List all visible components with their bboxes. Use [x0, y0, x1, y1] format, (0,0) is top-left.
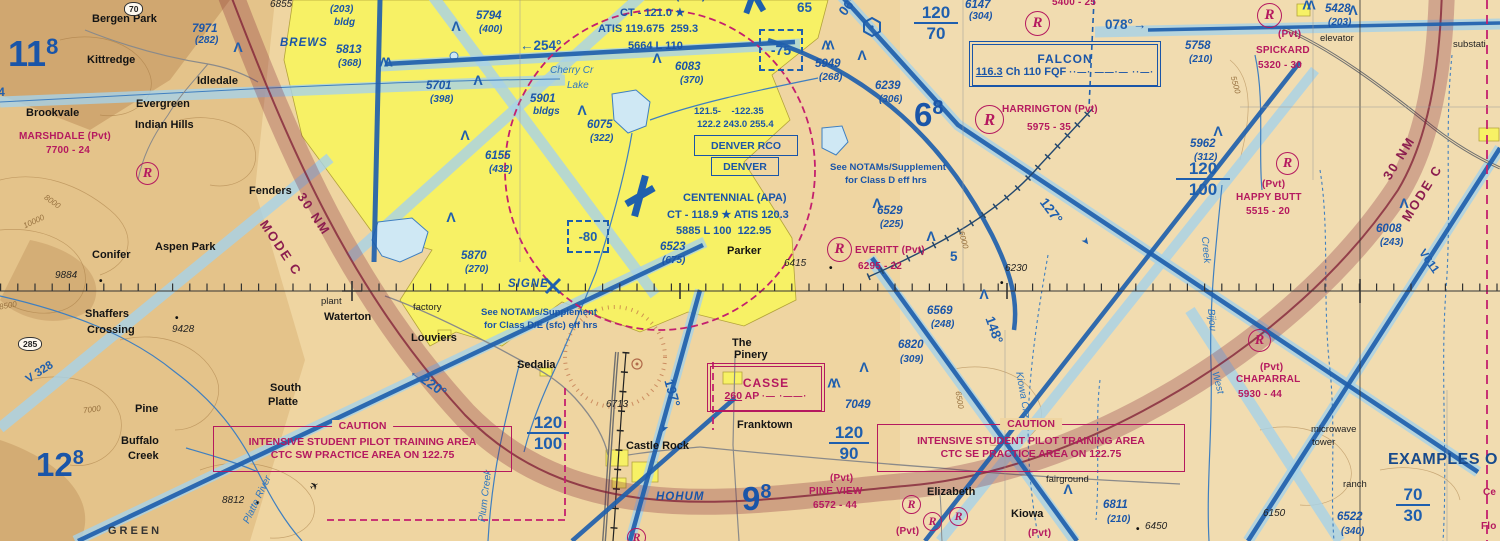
obst-5840-agl: (203) [330, 5, 353, 15]
town-evergreen: Evergreen [136, 99, 190, 110]
obsym-14: Λ [1348, 3, 1357, 17]
water-cherry-cr: Cherry Cr [550, 66, 593, 76]
spot-6855: 6855 [270, 0, 292, 10]
falcon-vor-freq: 116.3 Ch 110 FQF ··—· ——·— ··—· [973, 66, 1157, 78]
apt-buckley-name: AFB (BKF) [650, 0, 706, 2]
spot-6150: 6150 [1263, 509, 1285, 519]
casse-ndb-inner: CASSE 260 AP ·— ·——· [710, 366, 822, 411]
apt-spickard-pvt: (Pvt) [1278, 30, 1301, 40]
falcon-vor-inner: FALCON 116.3 Ch 110 FQF ··—· ——·— ··—· [972, 44, 1158, 86]
caution-sw-title: CAUTION [332, 420, 394, 432]
apt-harrington-data: 5975 - 35 [1027, 123, 1071, 133]
obst-7049: 7049 [845, 400, 871, 412]
mileage-65: 65 [797, 1, 812, 15]
poi-factory: factory [413, 303, 442, 313]
spot-dot-5: • [1000, 279, 1004, 289]
brg-arrow-197: ➤ [657, 422, 670, 434]
mef-98: 98 [742, 482, 771, 515]
r-top-2: R [1257, 3, 1282, 28]
obst-5949: 5949 [815, 59, 841, 71]
r-sedalia: R [627, 528, 646, 541]
town-aspen-park: Aspen Park [155, 242, 216, 253]
apt-pineview-pvt: (Pvt) [830, 474, 853, 484]
obst-5870: 5870 [461, 251, 487, 263]
falcon-freq: 116.3 [976, 66, 1003, 78]
r-spickard: R [1276, 152, 1299, 175]
obst-6529-agl: (225) [880, 220, 903, 230]
mef-68: 68 [914, 98, 943, 131]
obst-6523: 6523 [660, 242, 686, 254]
obsym-grp-3: ΛΛ [827, 377, 836, 390]
water-plum-creek: Plum Creek [478, 469, 494, 522]
obsym-11: Λ [979, 287, 988, 301]
awy-v84-cut: 84 [0, 88, 5, 100]
ctr-10000: 10000 [22, 214, 46, 231]
brg-197: 197° [662, 378, 682, 408]
town-creek: Creek [128, 451, 159, 462]
apt-spickard: SPICKARD [1256, 46, 1310, 56]
nm30-right: 30 NM [1381, 134, 1418, 182]
town-fenders: Fenders [249, 186, 292, 197]
brg-127: 127° [1037, 196, 1065, 226]
note-d-1: See NOTAMs/Supplement [830, 163, 946, 173]
apt-harrington: HARRINGTON (Pvt) [1002, 105, 1098, 115]
falcon-morse-code: ··—· ——·— ··—· [1069, 67, 1154, 77]
poi-substation: substati [1453, 40, 1486, 50]
denver-label: DENVER [723, 161, 767, 173]
fix-hohum: HOHUM [656, 492, 704, 504]
caution-se-line2: CTC SE PRACTICE AREA ON 122.75 [878, 448, 1184, 461]
fix-brews: BREWS [280, 38, 328, 50]
apt-buckley-atis: ATIS 119.675 259.3 [598, 24, 698, 35]
apt-5400-data: 5400 - 25 [1052, 0, 1096, 8]
town-south: South [270, 383, 301, 394]
poi-elevator: elevator [1320, 34, 1354, 44]
classb-120-100-s: 120100 [527, 414, 569, 452]
water-bijou: Bijou [1205, 308, 1217, 331]
obst-5840-bldg: bldg [334, 18, 355, 28]
ctr-5500: 5500 [1229, 75, 1241, 94]
brg-078: 078°→ [1105, 18, 1146, 32]
obsym-4: Λ [652, 51, 661, 65]
spot-9884: 9884 [55, 271, 77, 281]
town-franktown: Franktown [737, 420, 793, 431]
apt-centennial-data: 5885 L 100 122.95 [676, 226, 771, 237]
obsym-10: Λ [926, 229, 935, 243]
obst-5949-agl: (268) [819, 73, 842, 83]
caution-sw-line2: CTC SW PRACTICE AREA ON 122.75 [214, 449, 511, 462]
spot-6450: 6450 [1145, 522, 1167, 532]
obsym-7: Λ [446, 210, 455, 224]
obsym-8: Λ [857, 48, 866, 62]
modec-left: MODE C [258, 218, 305, 278]
note-de-2: for Class D/E (sfc) eff hrs [484, 321, 598, 331]
poi-ranch: ranch [1343, 480, 1367, 490]
obst-6147-agl: (304) [969, 12, 992, 22]
denver-box: DENVER [711, 157, 779, 176]
obst-6569-agl: (248) [931, 320, 954, 330]
area-green: GREEN [108, 526, 162, 537]
cut-ce: Ce [1483, 488, 1496, 498]
r-eliz-3: R [949, 507, 968, 526]
water-lake: Lake [567, 81, 589, 91]
caution-se-title: CAUTION [1000, 418, 1062, 430]
apt-buckley-ct: CT - 121.0 ★ [620, 8, 685, 19]
caution-box-sw: CAUTION INTENSIVE STUDENT PILOT TRAINING… [213, 426, 512, 472]
nm30-left: 30 NM [295, 190, 333, 237]
spot-dot-2: • [175, 314, 179, 324]
classb-120-100-e: 120100 [1176, 160, 1230, 198]
obst-6147: 6147 [965, 0, 991, 12]
obst-6523-agl: (675) [662, 256, 685, 266]
apt-marshdale-data: 7700 - 24 [46, 146, 90, 156]
town-parker: Parker [727, 246, 761, 257]
casse-ident: AP [742, 390, 759, 402]
r-eliz-2: R [923, 512, 942, 531]
obst-6083: 6083 [675, 62, 701, 74]
r-top-1: R [1025, 11, 1050, 36]
poi-microwave: microwave [1311, 425, 1356, 435]
obst-5428: 5428 [1325, 4, 1351, 16]
mef-128: 128 [36, 448, 84, 481]
r-marshdale: R [136, 162, 159, 185]
obst-5758-agl: (210) [1189, 55, 1212, 65]
obsym-1: Λ [233, 40, 242, 54]
town-brookvale: Brookvale [26, 108, 79, 119]
spot-dot-6: • [1136, 525, 1140, 535]
caution-se-line1: INTENSIVE STUDENT PILOT TRAINING AREA [878, 435, 1184, 448]
ctr-7000: 7000 [83, 405, 102, 415]
town-idledale: Idledale [197, 76, 238, 87]
poi-tower: tower [1312, 438, 1335, 448]
awy-v328: V 328 [24, 360, 55, 386]
ctr-6500: 6500 [954, 391, 965, 410]
obst-6811-agl: (210) [1107, 515, 1130, 525]
mileage-5: 5 [950, 250, 958, 264]
brg-254: ←254° [520, 39, 561, 53]
obst-6008-agl: (243) [1380, 238, 1403, 248]
obst-6075-agl: (322) [590, 134, 613, 144]
town-pinery: Pinery [734, 350, 768, 361]
falcon-channel: Ch 110 FQF [1003, 66, 1067, 78]
apt-happy-pvt: (Pvt) [1262, 180, 1285, 190]
obst-5701: 5701 [426, 81, 452, 93]
caution-box-se: CAUTION INTENSIVE STUDENT PILOT TRAINING… [877, 424, 1185, 472]
spot-8812: 8812 [222, 496, 244, 506]
town-kiowa: Kiowa [1011, 509, 1043, 520]
falcon-vor-name: FALCON [973, 52, 1157, 66]
brg-148: 148° [983, 315, 1005, 346]
spot-6230: 6230 [1005, 264, 1027, 274]
caution-sw-line1: INTENSIVE STUDENT PILOT TRAINING AREA [214, 436, 511, 449]
brg-arrow-127: ➤ [1078, 236, 1091, 249]
casse-freq-line: 260 AP ·— ·——· [711, 390, 821, 402]
glider-symbol: ✈ [308, 480, 321, 494]
modec-right: MODE C [1400, 162, 1445, 223]
note-de-1: See NOTAMs/Supplement [481, 308, 597, 318]
mef-118: 118 [8, 36, 58, 72]
route-shield-285: 285 [18, 337, 42, 351]
obsym-6: Λ [460, 128, 469, 142]
route-shield-70: 70 [124, 2, 143, 16]
obst-6239-agl: (306) [879, 95, 902, 105]
obst-6820-agl: (309) [900, 355, 923, 365]
r-bijou: R [1248, 329, 1271, 352]
obst-5701-agl: (398) [430, 95, 453, 105]
r-everitt: R [827, 237, 852, 262]
town-louviers: Louviers [411, 333, 457, 344]
obst-5813: 5813 [336, 45, 362, 57]
casse-ndb-box: CASSE 260 AP ·— ·——· [707, 363, 825, 412]
town-elizabeth: Elizabeth [927, 487, 975, 498]
rco-freq-1: 121.5- -122.35 [694, 107, 764, 117]
obsym-3: Λ [473, 73, 482, 87]
casse-morse-code: ·— ·——· [762, 391, 808, 401]
obst-5813-agl: (368) [338, 59, 361, 69]
obsym-5: Λ [577, 103, 586, 117]
classb-floor-75-value: -75 [771, 42, 791, 58]
classb-floor-75: -75 [759, 29, 803, 71]
obst-6569: 6569 [927, 306, 953, 318]
obst-7971-agl: (282) [195, 36, 218, 46]
casse-name: CASSE [711, 376, 821, 390]
obst-5870-agl: (270) [465, 265, 488, 275]
obst-6811: 6811 [1103, 500, 1128, 512]
examples-label: EXAMPLES O [1388, 452, 1498, 468]
apt-pvt-s1: (Pvt) [896, 527, 919, 537]
apt-everitt-data: 6295 - 22 [858, 262, 902, 272]
obsym-16: Λ [1063, 482, 1072, 496]
obsym-15: Λ [859, 360, 868, 374]
r-eliz-1: R [902, 495, 921, 514]
obsym-grp-4: ΛΛ [1302, 0, 1311, 12]
spot-9428: 9428 [172, 325, 194, 335]
classb-floor-80-value: -80 [579, 229, 598, 244]
apt-pineview-data: 6572 - 44 [813, 501, 857, 511]
apt-spickard-data: 5320 - 30 [1258, 61, 1302, 71]
classb-120-90: 12090 [829, 424, 869, 462]
obst-5962: 5962 [1190, 139, 1216, 151]
town-bergen-park: Bergen Park [92, 14, 157, 25]
obsym-13: Λ [1399, 196, 1408, 210]
r-harrington: R [975, 105, 1004, 134]
awy-v611: V611 [1416, 248, 1440, 276]
obst-6239: 6239 [875, 81, 901, 93]
classb-120-70: 12070 [914, 4, 958, 42]
rco-freq-2: 122.2 243.0 255.4 [697, 120, 774, 130]
falcon-vor-box: FALCON 116.3 Ch 110 FQF ··—· ——·— ··—· [969, 41, 1161, 87]
obst-6820: 6820 [898, 340, 924, 352]
town-castle-rock: Castle Rock [626, 441, 689, 452]
apt-pineview: PINE VIEW [809, 487, 862, 497]
apt-chaparral-pvt: (Pvt) [1260, 363, 1283, 373]
spot-6415: 6415 [784, 259, 806, 269]
obst-6155: 6155 [485, 151, 511, 163]
apt-chaparral: CHAPARRAL [1236, 375, 1300, 385]
ctr-6000: 6000 [957, 230, 969, 249]
town-indian-hills: Indian Hills [135, 120, 194, 131]
obsym-9: Λ [872, 196, 881, 210]
obsym-grp-2: ΛΛ [821, 39, 830, 52]
obst-6522: 6522 [1337, 512, 1363, 524]
apt-happy-butt: HAPPY BUTT [1236, 193, 1302, 203]
apt-happy-data: 5515 - 20 [1246, 207, 1290, 217]
water-creek: Creek [1199, 236, 1211, 263]
spot-dot-4: • [829, 264, 833, 274]
sectional-chart[interactable]: Bergen ParkKittredgeIdledaleEvergreenInd… [0, 0, 1500, 541]
town-waterton: Waterton [324, 312, 371, 323]
water-west: West [1209, 371, 1225, 395]
obst-5901: 5901 [530, 94, 556, 106]
spot-dot-1: • [99, 277, 103, 287]
note-d-2: for Class D eff hrs [845, 176, 927, 186]
obst-6008: 6008 [1376, 224, 1402, 236]
poi-plant: plant [321, 297, 342, 307]
apt-centennial-ct: CT - 118.9 ★ ATIS 120.3 [667, 210, 789, 221]
denver-rco-label: DENVER RCO [711, 140, 781, 152]
town-pine: Pine [135, 404, 158, 415]
town-conifer: Conifer [92, 250, 131, 261]
obsym-12: Λ [1213, 124, 1222, 138]
obsym-grp-1: ΛΛ [379, 56, 388, 69]
brg-220: ←220° [407, 365, 449, 400]
water-platte-river: Platte River [242, 475, 274, 526]
obst-5758: 5758 [1185, 41, 1211, 53]
ctr-8500: 8500 [0, 301, 17, 312]
apt-marshdale: MARSHDALE (Pvt) [19, 132, 111, 142]
cut-flo: Flo [1481, 522, 1497, 532]
town-the: The [732, 338, 752, 349]
obst-5428-agl: (203) [1328, 18, 1351, 28]
obsym-2: Λ [451, 19, 460, 33]
classb-floor-80: -80 [567, 220, 609, 253]
town-crossing: Crossing [87, 325, 135, 336]
obst-6155-agl: (432) [489, 165, 512, 175]
obst-6522-agl: (340) [1341, 527, 1364, 537]
town-shaffers: Shaffers [85, 309, 129, 320]
spot-6713: 6713 [606, 400, 628, 410]
obst-5901-bldgs: bldgs [533, 107, 560, 117]
apt-pvt-s2: (Pvt) [1028, 529, 1051, 539]
apt-everitt: EVERITT (Pvt) [855, 246, 925, 256]
apt-chaparral-data: 5930 - 44 [1238, 390, 1282, 400]
obst-5840: 5840 [337, 0, 363, 2]
fix-signe: SIGNE [508, 279, 549, 291]
apt-centennial-name: CENTENNIAL (APA) [683, 193, 786, 204]
denver-rco-box: DENVER RCO [694, 135, 798, 156]
town-sedalia: Sedalia [517, 360, 556, 371]
obst-5794: 5794 [476, 11, 502, 23]
town-kittredge: Kittredge [87, 55, 135, 66]
obst-6083-agl: (370) [680, 76, 703, 86]
casse-freq: 260 [725, 390, 743, 402]
classb-70-30: 7030 [1396, 486, 1430, 524]
obst-5794-agl: (400) [479, 25, 502, 35]
obst-6075: 6075 [587, 120, 613, 132]
town-buffalo: Buffalo [121, 436, 159, 447]
brg-106: 06° [836, 0, 859, 18]
town-platte: Platte [268, 397, 298, 408]
obst-7971: 7971 [192, 24, 218, 36]
ctr-8000: 8000 [42, 194, 61, 211]
